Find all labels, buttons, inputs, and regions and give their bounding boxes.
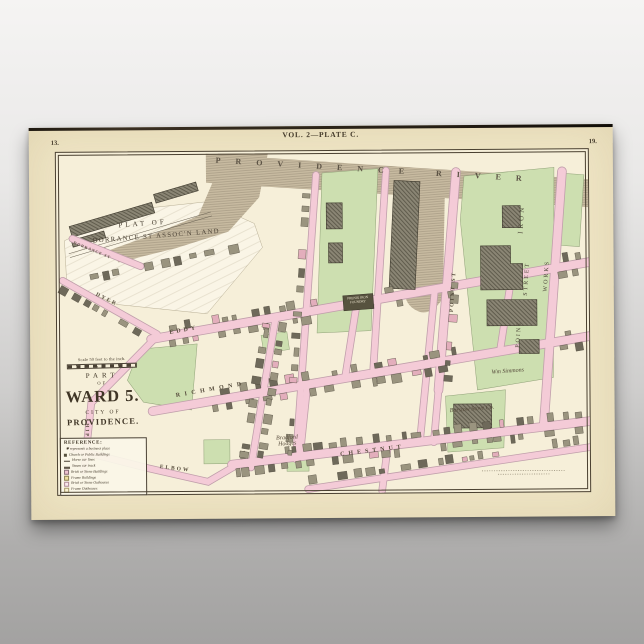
title-city: PROVIDENCE. bbox=[62, 416, 144, 428]
legend-swatch bbox=[64, 454, 67, 457]
scale-text: Scale 50 feet to the inch. bbox=[61, 356, 143, 363]
legend-swatch bbox=[64, 487, 69, 492]
legend-swatch bbox=[64, 470, 69, 475]
credit-line bbox=[482, 470, 566, 474]
reference-heading: REFERENCE: bbox=[64, 440, 144, 446]
page-number-left: 13. bbox=[51, 140, 59, 147]
map-title-block: Scale 50 feet to the inch. PART OF WARD … bbox=[61, 356, 145, 428]
map-poster: VOL. 2—PLATE C. 13. 19. bbox=[29, 124, 616, 520]
scale-bar bbox=[67, 363, 137, 370]
legend-item: Frame Outhouses bbox=[64, 486, 144, 492]
title-ward: WARD 5. bbox=[61, 386, 143, 408]
legend-swatch bbox=[64, 482, 69, 487]
plate-title: VOL. 2—PLATE C. bbox=[261, 130, 381, 140]
legend-swatch bbox=[64, 461, 70, 462]
page-number-right: 19. bbox=[589, 138, 597, 145]
legend-swatch bbox=[64, 476, 69, 481]
legend-swatch bbox=[64, 466, 70, 467]
page-background: { "poster": { "plate_title": "VOL. 2—PLA… bbox=[0, 0, 644, 644]
reference-legend: REFERENCE: ✱ represents a business place… bbox=[60, 437, 147, 495]
map-frame: PROVIDENCE RIVER PLAT OF DORRANCE ST ASS… bbox=[55, 148, 591, 496]
